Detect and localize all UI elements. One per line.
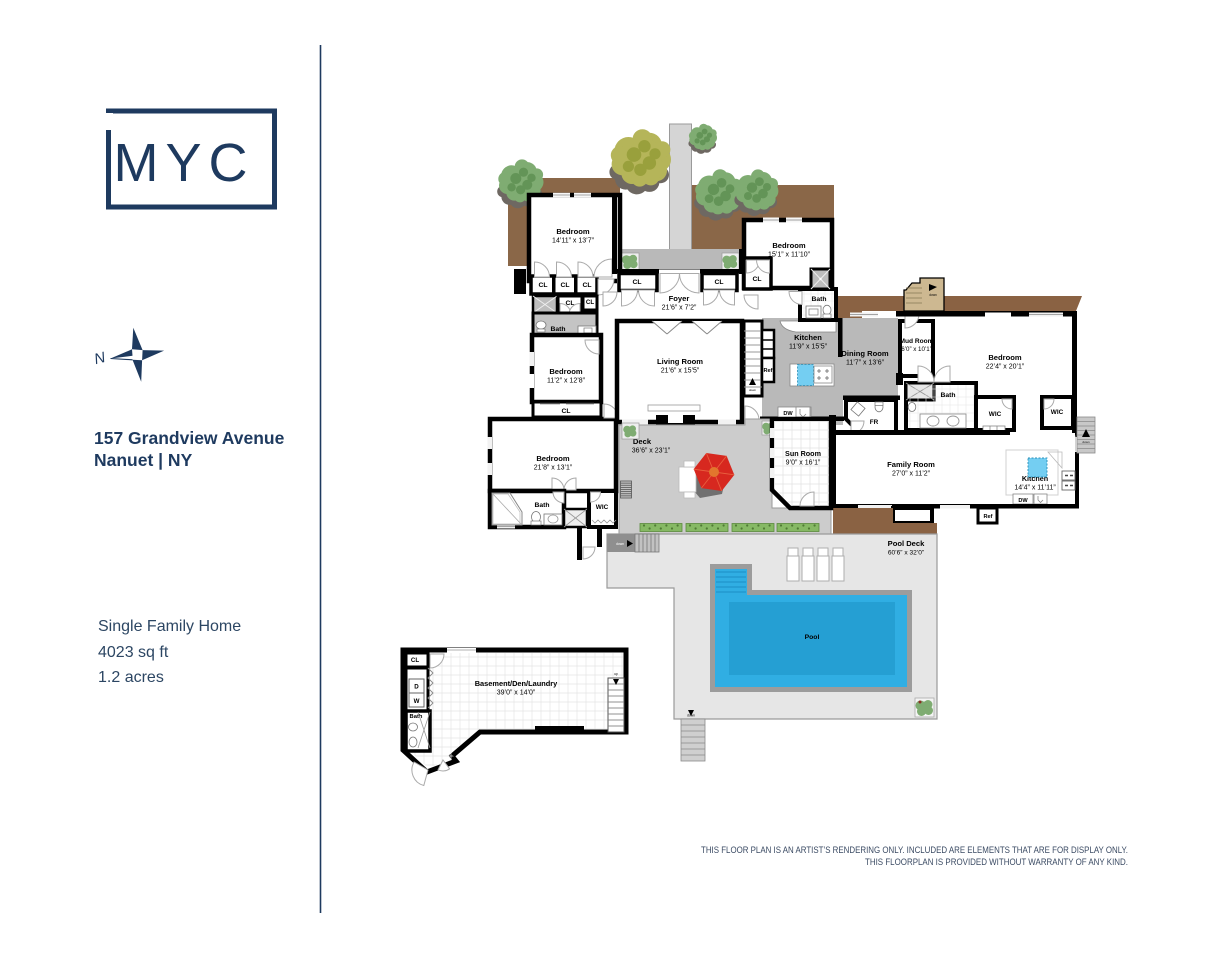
svg-text:Nanuet | NY: Nanuet | NY (94, 450, 193, 470)
svg-text:WIC: WIC (989, 411, 1002, 418)
svg-text:CL: CL (560, 282, 569, 289)
svg-text:CL: CL (561, 408, 570, 415)
svg-text:down: down (616, 542, 624, 546)
svg-text:THIS FLOORPLAN IS PROVIDED WIT: THIS FLOORPLAN IS PROVIDED WITHOUT WARRA… (865, 857, 1128, 867)
svg-text:Living Room: Living Room (657, 357, 703, 366)
svg-text:11’7” x 13’6”: 11’7” x 13’6” (846, 360, 885, 367)
svg-text:down: down (1082, 440, 1090, 444)
svg-text:21’6” x 15’5”: 21’6” x 15’5” (661, 368, 700, 375)
svg-text:CL: CL (586, 299, 594, 306)
svg-text:CL: CL (714, 279, 723, 286)
svg-text:14’4” x 11’11”: 14’4” x 11’11” (1014, 485, 1056, 492)
svg-text:Ref: Ref (983, 514, 992, 520)
svg-text:36’6” x 23’1”: 36’6” x 23’1” (632, 448, 671, 455)
svg-text:Bath: Bath (940, 392, 955, 399)
svg-text:DW: DW (783, 411, 793, 417)
svg-text:22’4” x 20’1”: 22’4” x 20’1” (986, 364, 1025, 371)
svg-text:WIC: WIC (596, 504, 609, 511)
svg-text:Bath: Bath (550, 326, 565, 333)
svg-text:CL: CL (582, 282, 591, 289)
svg-text:21’8” x 13’1”: 21’8” x 13’1” (534, 465, 573, 472)
svg-text:4023 sq ft: 4023 sq ft (98, 644, 169, 661)
svg-text:Bedroom: Bedroom (556, 227, 590, 236)
svg-text:CL: CL (752, 276, 761, 283)
svg-text:Mud Room: Mud Room (899, 338, 933, 345)
svg-text:Bath: Bath (811, 296, 826, 303)
svg-text:MYC: MYC (114, 133, 255, 193)
svg-text:Pool Deck: Pool Deck (888, 539, 925, 548)
svg-text:CL: CL (538, 282, 547, 289)
svg-text:6’0” x 10’1”: 6’0” x 10’1” (901, 346, 932, 353)
svg-text:1.2 acres: 1.2 acres (98, 669, 164, 686)
svg-text:Dining Room: Dining Room (841, 349, 888, 358)
svg-text:11’9” x 15’5”: 11’9” x 15’5” (789, 344, 828, 351)
svg-text:CL: CL (411, 657, 419, 664)
svg-text:Single Family Home: Single Family Home (98, 618, 241, 635)
svg-text:down: down (749, 388, 757, 392)
svg-text:39’0” x 14’0”: 39’0” x 14’0” (497, 690, 536, 697)
svg-text:Family Room: Family Room (887, 460, 935, 469)
svg-text:Bedroom: Bedroom (536, 454, 570, 463)
svg-text:15’1” x 11’10”: 15’1” x 11’10” (768, 252, 811, 259)
svg-text:DW: DW (1018, 498, 1028, 504)
svg-text:Ref: Ref (763, 368, 772, 374)
svg-text:D: D (414, 684, 419, 691)
svg-text:Bedroom: Bedroom (988, 353, 1022, 362)
svg-text:Sun Room: Sun Room (785, 449, 821, 458)
svg-text:9’0” x 16’1”: 9’0” x 16’1” (786, 460, 821, 467)
svg-text:60’6” x 32’0”: 60’6” x 32’0” (888, 550, 924, 557)
svg-text:FR: FR (870, 419, 879, 426)
svg-text:W: W (414, 698, 420, 705)
svg-text:14’11” x 13’7”: 14’11” x 13’7” (552, 238, 595, 245)
svg-text:Bath: Bath (534, 502, 549, 509)
svg-text:CL: CL (632, 279, 641, 286)
svg-text:Foyer: Foyer (669, 294, 690, 303)
svg-text:Pool: Pool (805, 634, 820, 641)
svg-text:157 Grandview Avenue: 157 Grandview Avenue (94, 428, 285, 448)
svg-text:Basement/Den/Laundry: Basement/Den/Laundry (475, 679, 558, 688)
svg-text:Bath: Bath (410, 714, 423, 720)
svg-text:down: down (929, 293, 937, 297)
svg-text:11’2” x 12’8”: 11’2” x 12’8” (547, 378, 586, 385)
svg-text:21’6” x 7’2”: 21’6” x 7’2” (662, 305, 697, 312)
svg-text:N: N (92, 349, 107, 368)
svg-text:Kitchen: Kitchen (794, 333, 822, 342)
svg-text:27’0” x 11’2”: 27’0” x 11’2” (892, 471, 931, 478)
svg-text:Bedroom: Bedroom (772, 241, 806, 250)
svg-text:up: up (614, 672, 618, 676)
svg-text:THIS FLOOR PLAN IS AN ARTIST’S: THIS FLOOR PLAN IS AN ARTIST’S RENDERING… (701, 845, 1128, 855)
svg-text:WIC: WIC (1051, 409, 1064, 416)
svg-text:Bedroom: Bedroom (549, 367, 583, 376)
